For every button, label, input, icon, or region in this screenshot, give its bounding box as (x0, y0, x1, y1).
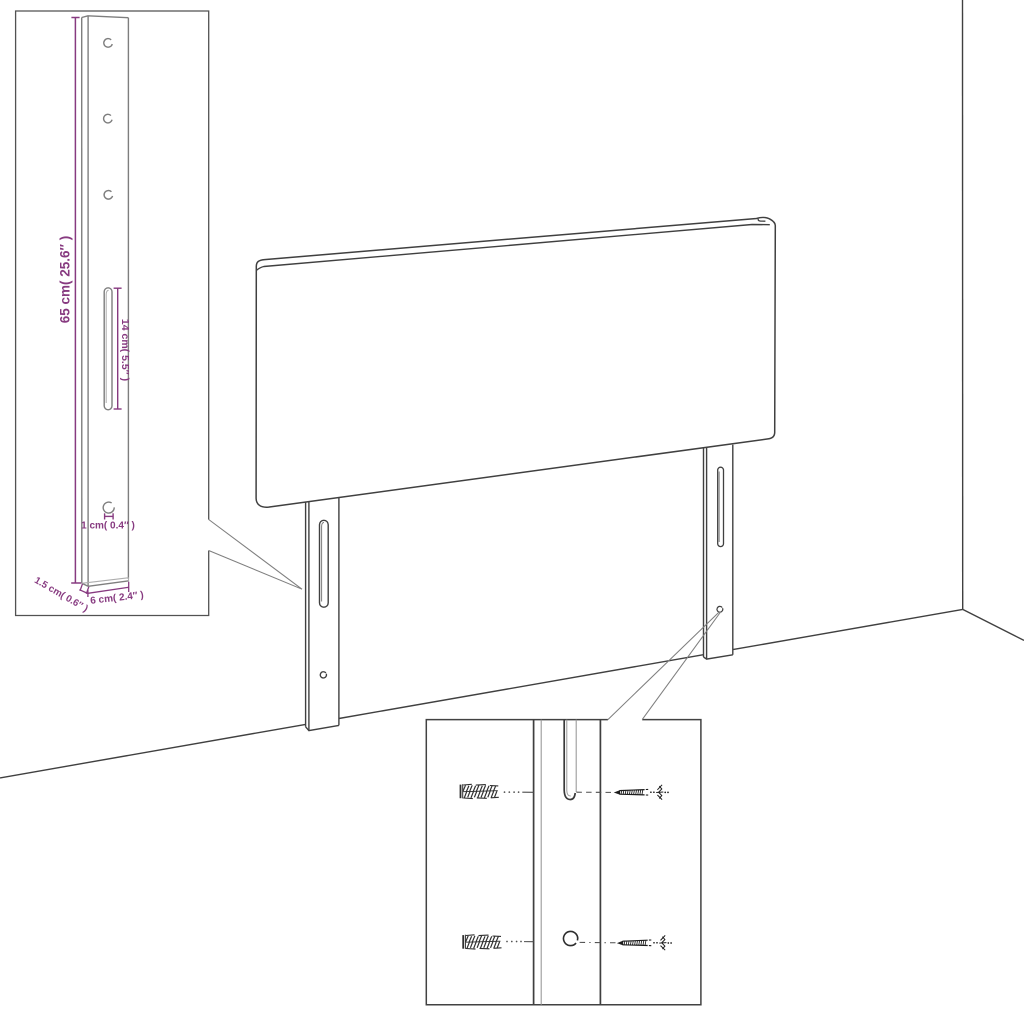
svg-text:14 cm( 5.5″ ): 14 cm( 5.5″ ) (119, 319, 131, 381)
svg-text:65 cm( 25.6″ ): 65 cm( 25.6″ ) (57, 236, 72, 324)
svg-text:1 cm( 0.4″ ): 1 cm( 0.4″ ) (81, 520, 135, 531)
